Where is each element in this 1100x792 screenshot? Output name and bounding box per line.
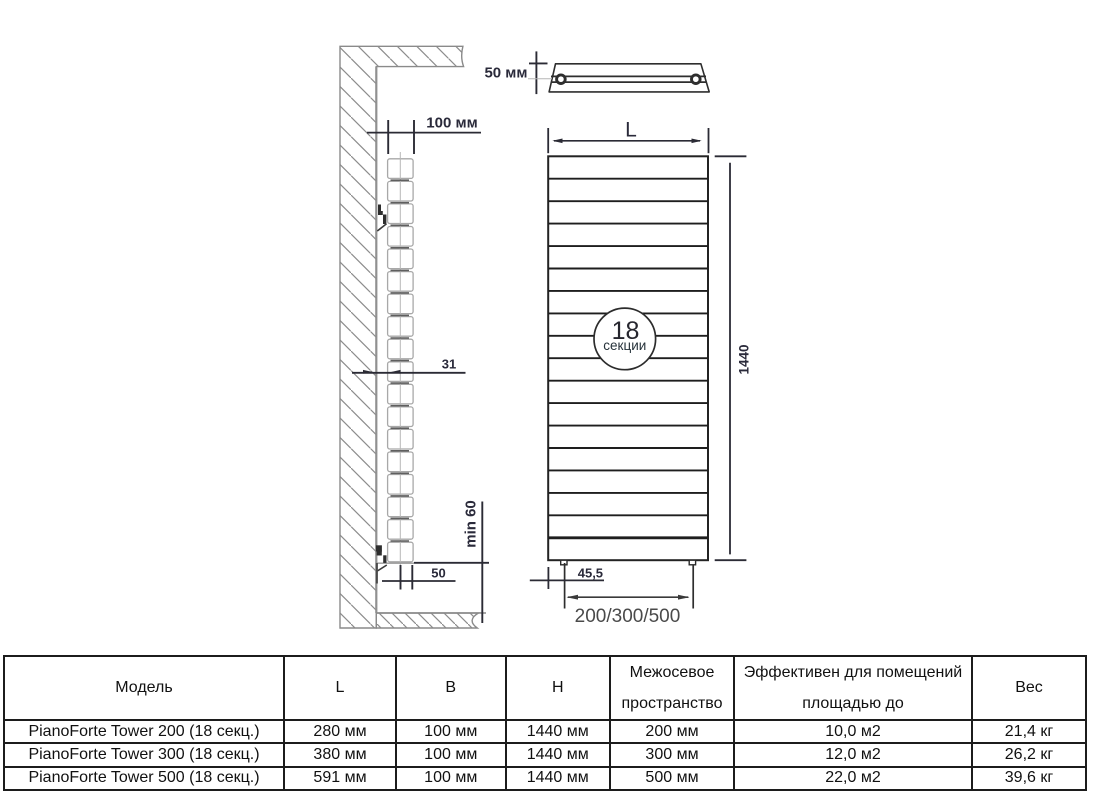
- svg-text:L: L: [625, 119, 637, 142]
- svg-text:50: 50: [431, 566, 445, 581]
- svg-text:50 мм: 50 мм: [484, 65, 527, 82]
- svg-text:31: 31: [442, 356, 456, 371]
- svg-text:45,5: 45,5: [578, 566, 603, 581]
- svg-text:100 мм: 100 мм: [426, 115, 477, 132]
- svg-text:min 60: min 60: [463, 500, 480, 548]
- svg-text:секции: секции: [603, 338, 646, 353]
- svg-text:200/300/500: 200/300/500: [575, 606, 681, 627]
- svg-text:1440: 1440: [737, 344, 752, 374]
